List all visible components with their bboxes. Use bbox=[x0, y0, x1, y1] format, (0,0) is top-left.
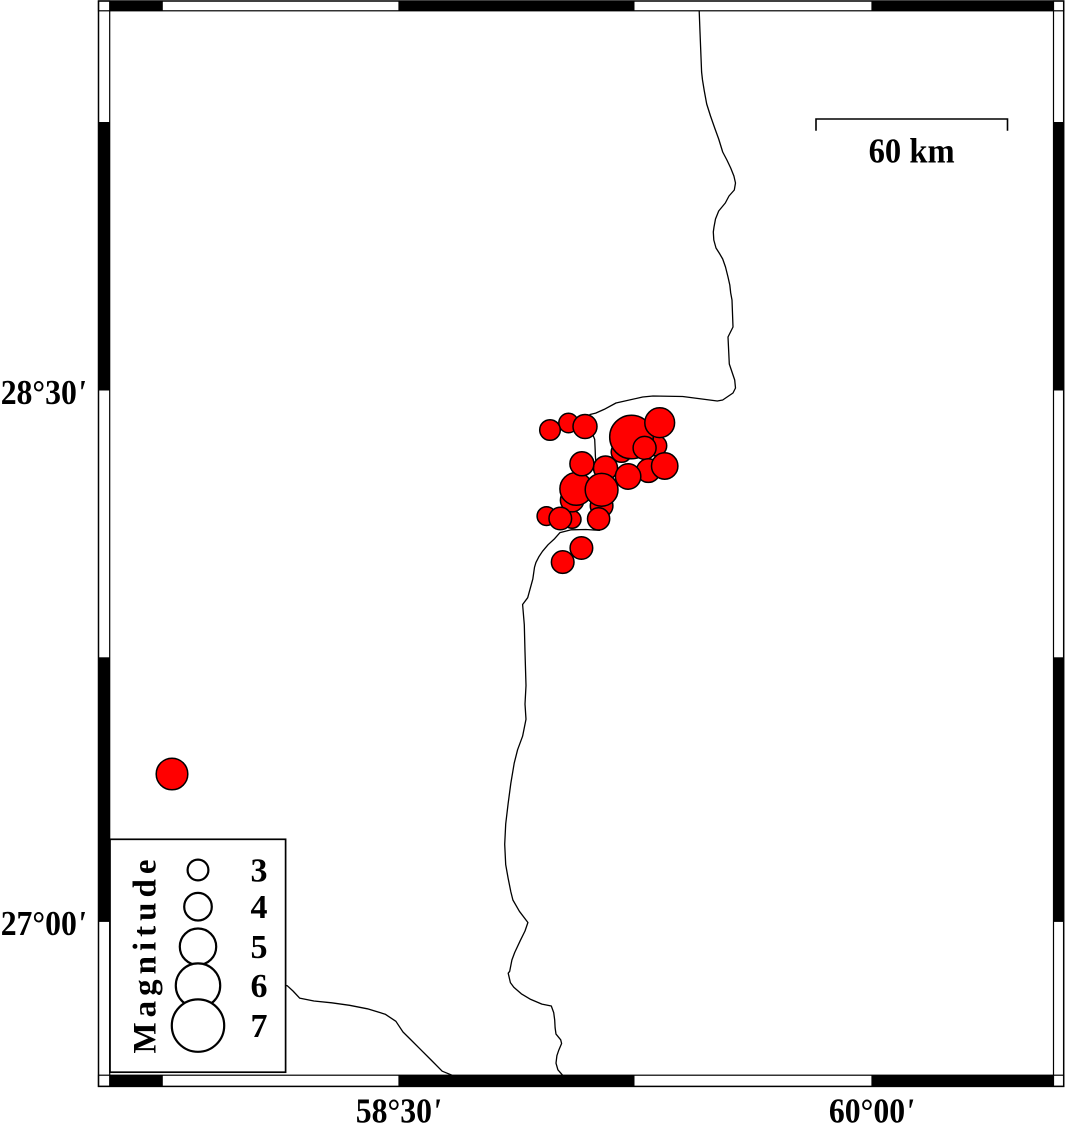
svg-text:27°00': 27°00' bbox=[1, 904, 86, 943]
svg-text:3: 3 bbox=[251, 853, 268, 890]
svg-text:7: 7 bbox=[251, 1008, 268, 1045]
svg-text:5: 5 bbox=[251, 929, 268, 966]
svg-text:60°00': 60°00' bbox=[829, 1092, 914, 1125]
svg-text:58°30': 58°30' bbox=[356, 1092, 441, 1125]
svg-text:Magnitude: Magnitude bbox=[128, 854, 164, 1053]
svg-text:6: 6 bbox=[251, 968, 268, 1005]
svg-text:28°30': 28°30' bbox=[1, 373, 86, 412]
svg-text:60 km: 60 km bbox=[869, 132, 955, 171]
svg-text:4: 4 bbox=[251, 889, 268, 926]
